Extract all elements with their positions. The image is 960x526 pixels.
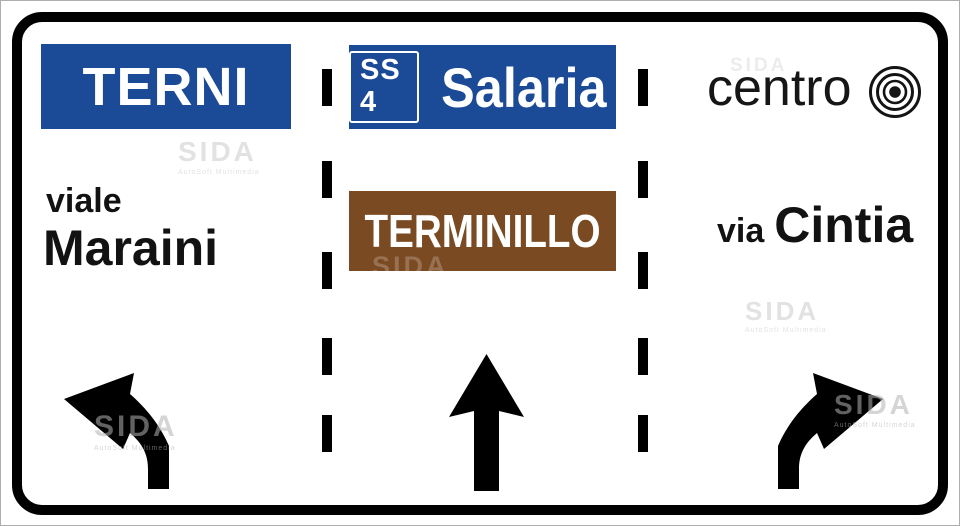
route-panel-salaria: SS 4 Salaria	[349, 45, 616, 129]
lane-divider-dash	[638, 161, 648, 198]
city-center-bullseye-icon	[868, 65, 922, 119]
straight-ahead-arrow-icon	[449, 354, 524, 491]
tourist-panel-terminillo: TERMINILLO	[349, 191, 616, 271]
street-prefix-via: via	[717, 214, 764, 248]
street-name-via-cintia: via Cintia	[717, 200, 913, 250]
route-name-salaria: Salaria	[441, 55, 606, 120]
route-badge-ss4: SS 4	[349, 51, 419, 124]
street-name-cintia: Cintia	[774, 200, 913, 250]
turn-right-arrow-icon	[776, 369, 891, 489]
destination-panel-terni-label: TERNI	[83, 56, 250, 118]
lane-divider-dash	[638, 415, 648, 452]
lane-divider-dash	[638, 338, 648, 375]
street-prefix-viale: viale	[46, 184, 122, 218]
street-name-maraini: Maraini	[43, 223, 218, 273]
lane-divider-dash	[322, 161, 332, 198]
tourist-panel-terminillo-label: TERMINILLO	[364, 204, 600, 258]
direction-sign: TERNI viale Maraini SS 4 Salaria TERMINI…	[0, 0, 960, 526]
destination-panel-terni: TERNI	[41, 44, 291, 129]
destination-centro-label: centro	[707, 62, 852, 114]
turn-left-arrow-icon	[56, 369, 171, 489]
lane-divider-dash	[322, 415, 332, 452]
lane-divider-dash	[322, 69, 332, 106]
lane-divider-dash	[638, 252, 648, 289]
lane-divider-dash	[638, 69, 648, 106]
lane-divider-dash	[322, 252, 332, 289]
lane-divider-dash	[322, 338, 332, 375]
